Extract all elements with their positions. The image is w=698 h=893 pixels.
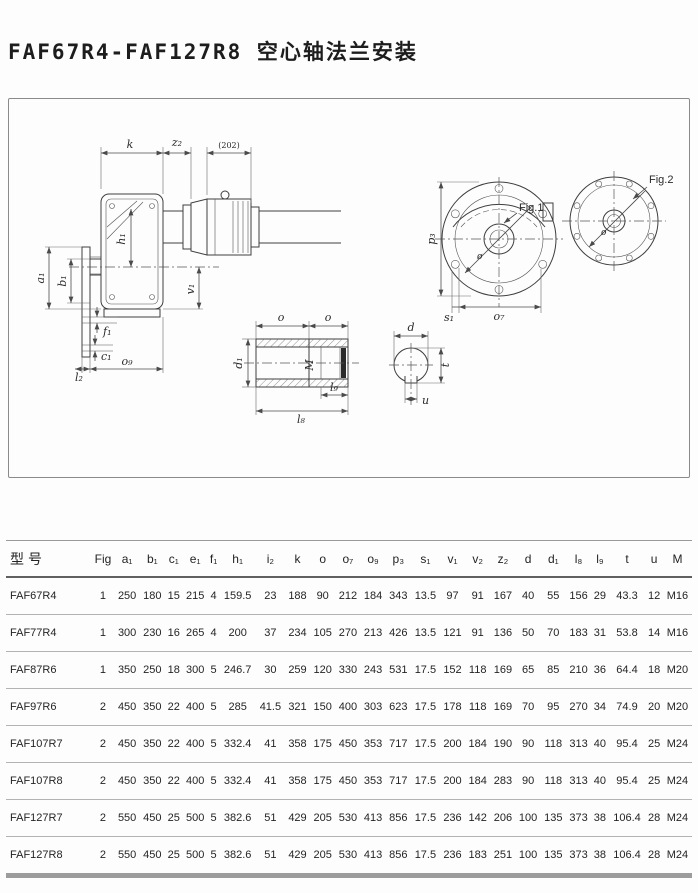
value-cell: 5 [208, 800, 220, 837]
value-cell: 106.4 [609, 800, 646, 837]
table-row: FAF67R41250180152154159.5231889021218434… [6, 577, 692, 615]
column-header: h₁ [219, 541, 256, 578]
value-cell: 413 [361, 800, 386, 837]
value-cell: 300 [115, 615, 140, 652]
column-header: z₂ [490, 541, 515, 578]
value-cell: 1 [91, 615, 114, 652]
column-header: l₈ [566, 541, 591, 578]
value-cell: M20 [663, 652, 692, 689]
value-cell: 500 [183, 837, 208, 876]
value-cell: 200 [219, 615, 256, 652]
value-cell: 90 [516, 726, 541, 763]
value-cell: 28 [645, 837, 663, 876]
value-cell: 121 [440, 615, 465, 652]
dim-label-o9: o₉ [121, 355, 133, 368]
value-cell: 215 [183, 577, 208, 615]
dim-label-l8: l₈ [297, 413, 306, 426]
value-cell: 183 [566, 615, 591, 652]
value-cell: 167 [490, 577, 515, 615]
column-header-model: 型号 [6, 541, 91, 578]
column-header: v₂ [465, 541, 490, 578]
table-row: FAF127R72550450255005382.651429205530413… [6, 800, 692, 837]
column-header: f₁ [208, 541, 220, 578]
value-cell: 178 [440, 689, 465, 726]
value-cell: 70 [541, 615, 566, 652]
value-cell: 17.5 [411, 652, 440, 689]
column-header: o₇ [335, 541, 360, 578]
value-cell: 15 [165, 577, 183, 615]
value-cell: 118 [465, 652, 490, 689]
value-cell: 118 [465, 689, 490, 726]
value-cell: 230 [140, 615, 165, 652]
value-cell: 50 [516, 615, 541, 652]
value-cell: 332.4 [219, 763, 256, 800]
value-cell: 5 [208, 726, 220, 763]
value-cell: 717 [386, 763, 411, 800]
value-cell: M24 [663, 837, 692, 876]
value-cell: 38 [591, 837, 609, 876]
value-cell: 450 [115, 763, 140, 800]
value-cell: 16 [165, 615, 183, 652]
value-cell: 350 [140, 726, 165, 763]
value-cell: 188 [285, 577, 310, 615]
value-cell: 1 [91, 652, 114, 689]
value-cell: 95 [541, 689, 566, 726]
value-cell: 270 [566, 689, 591, 726]
flange-view-fig2: ø Fig.2 [562, 171, 673, 271]
value-cell: 429 [285, 800, 310, 837]
column-header: u [645, 541, 663, 578]
dim-label-k: k [127, 138, 134, 151]
value-cell: 210 [566, 652, 591, 689]
value-cell: 283 [490, 763, 515, 800]
table-body: FAF67R41250180152154159.5231889021218434… [6, 577, 692, 876]
value-cell: 25 [645, 763, 663, 800]
dim-label-u: u [422, 394, 429, 407]
value-cell: 152 [440, 652, 465, 689]
value-cell: 530 [335, 837, 360, 876]
model-cell: FAF107R8 [6, 763, 91, 800]
value-cell: 40 [591, 726, 609, 763]
dim-label-l2: l₂ [75, 371, 83, 384]
fig1-label: Fig.1 [519, 202, 543, 214]
value-cell: 118 [541, 763, 566, 800]
model-cell: FAF127R7 [6, 800, 91, 837]
value-cell: 34 [591, 689, 609, 726]
value-cell: 450 [335, 763, 360, 800]
value-cell: 90 [310, 577, 335, 615]
value-cell: 36 [591, 652, 609, 689]
value-cell: 17.5 [411, 837, 440, 876]
value-cell: 550 [115, 837, 140, 876]
value-cell: 17.5 [411, 726, 440, 763]
value-cell: 358 [285, 726, 310, 763]
value-cell: 184 [465, 726, 490, 763]
model-cell: FAF107R7 [6, 726, 91, 763]
value-cell: 175 [310, 726, 335, 763]
value-cell: 175 [310, 763, 335, 800]
value-cell: 190 [490, 726, 515, 763]
value-cell: 22 [165, 763, 183, 800]
value-cell: 500 [183, 800, 208, 837]
dim-label-d: d [407, 321, 414, 334]
value-cell: 70 [516, 689, 541, 726]
hollow-shaft-drawing: M d₁ o o l₉ l₈ [232, 311, 359, 426]
value-cell: 450 [335, 726, 360, 763]
dim-label-a1: a₁ [34, 273, 47, 284]
value-cell: 169 [490, 689, 515, 726]
value-cell: 55 [541, 577, 566, 615]
value-cell: 37 [256, 615, 285, 652]
value-cell: 350 [140, 763, 165, 800]
value-cell: 1 [91, 577, 114, 615]
value-cell: 303 [361, 689, 386, 726]
column-header: a₁ [115, 541, 140, 578]
value-cell: 531 [386, 652, 411, 689]
value-cell: 65 [516, 652, 541, 689]
value-cell: 135 [541, 800, 566, 837]
value-cell: M24 [663, 763, 692, 800]
column-header: p₃ [386, 541, 411, 578]
value-cell: M16 [663, 577, 692, 615]
column-header: k [285, 541, 310, 578]
value-cell: 353 [361, 763, 386, 800]
value-cell: 213 [361, 615, 386, 652]
value-cell: 234 [285, 615, 310, 652]
column-header: t [609, 541, 646, 578]
dim-label-o-right: o [325, 311, 332, 324]
value-cell: 106.4 [609, 837, 646, 876]
dim-label-v1: v₁ [184, 284, 197, 295]
dim-label-d1: d₁ [232, 357, 245, 368]
value-cell: 300 [183, 652, 208, 689]
value-cell: 118 [541, 726, 566, 763]
value-cell: 285 [219, 689, 256, 726]
value-cell: 95.4 [609, 726, 646, 763]
value-cell: 321 [285, 689, 310, 726]
value-cell: 200 [440, 763, 465, 800]
column-header: s₁ [411, 541, 440, 578]
value-cell: 205 [310, 800, 335, 837]
value-cell: 270 [335, 615, 360, 652]
value-cell: 382.6 [219, 800, 256, 837]
value-cell: 41 [256, 763, 285, 800]
value-cell: 400 [335, 689, 360, 726]
value-cell: 14 [645, 615, 663, 652]
value-cell: 180 [140, 577, 165, 615]
value-cell: 251 [490, 837, 515, 876]
value-cell: 29 [591, 577, 609, 615]
value-cell: 4 [208, 615, 220, 652]
value-cell: 120 [310, 652, 335, 689]
value-cell: 382.6 [219, 837, 256, 876]
value-cell: 2 [91, 763, 114, 800]
value-cell: 358 [285, 763, 310, 800]
value-cell: 4 [208, 577, 220, 615]
value-cell: 43.3 [609, 577, 646, 615]
value-cell: 184 [465, 763, 490, 800]
value-cell: 184 [361, 577, 386, 615]
value-cell: 51 [256, 837, 285, 876]
value-cell: 259 [285, 652, 310, 689]
value-cell: 350 [140, 689, 165, 726]
value-cell: 243 [361, 652, 386, 689]
value-cell: 450 [140, 837, 165, 876]
diameter-mark-fig2: ø [600, 228, 607, 238]
value-cell: 91 [465, 615, 490, 652]
value-cell: 169 [490, 652, 515, 689]
value-cell: 100 [516, 800, 541, 837]
value-cell: 5 [208, 763, 220, 800]
value-cell: 400 [183, 763, 208, 800]
table-head: 型号Figa₁b₁c₁e₁f₁h₁i₂koo₇o₉p₃s₁v₁v₂z₂dd₁l₈… [6, 541, 692, 578]
diameter-mark-fig1: ø [476, 252, 483, 262]
value-cell: 41.5 [256, 689, 285, 726]
value-cell: 13.5 [411, 577, 440, 615]
thread-label-M: M [303, 359, 316, 372]
value-cell: 250 [115, 577, 140, 615]
dim-label-s1: s₁ [444, 311, 454, 324]
technical-drawing-panel: k z₂ (202) a₁ b₁ h₁ v₁ [8, 98, 690, 478]
model-cell: FAF77R4 [6, 615, 91, 652]
value-cell: 426 [386, 615, 411, 652]
dim-label-z2: z₂ [171, 136, 182, 149]
value-cell: 2 [91, 837, 114, 876]
value-cell: 22 [165, 726, 183, 763]
value-cell: 156 [566, 577, 591, 615]
value-cell: 13.5 [411, 615, 440, 652]
value-cell: 429 [285, 837, 310, 876]
model-cell: FAF97R6 [6, 689, 91, 726]
value-cell: 450 [115, 726, 140, 763]
model-cell: FAF127R8 [6, 837, 91, 876]
value-cell: M24 [663, 726, 692, 763]
value-cell: 400 [183, 689, 208, 726]
value-cell: 25 [645, 726, 663, 763]
value-cell: 450 [140, 800, 165, 837]
fig2-label: Fig.2 [649, 174, 673, 186]
table-row: FAF97R6245035022400528541.53211504003036… [6, 689, 692, 726]
value-cell: 100 [516, 837, 541, 876]
value-cell: 550 [115, 800, 140, 837]
value-cell: 18 [645, 652, 663, 689]
dim-label-h1: h₁ [115, 233, 128, 245]
value-cell: 183 [465, 837, 490, 876]
value-cell: 5 [208, 689, 220, 726]
value-cell: 450 [115, 689, 140, 726]
value-cell: M24 [663, 800, 692, 837]
column-header: e₁ [183, 541, 208, 578]
value-cell: 74.9 [609, 689, 646, 726]
column-header: Fig [91, 541, 114, 578]
value-cell: 22 [165, 689, 183, 726]
value-cell: 95.4 [609, 763, 646, 800]
value-cell: 28 [645, 800, 663, 837]
value-cell: 17.5 [411, 800, 440, 837]
value-cell: 30 [256, 652, 285, 689]
value-cell: 31 [591, 615, 609, 652]
dim-label-l9: l₉ [330, 381, 339, 394]
value-cell: 373 [566, 800, 591, 837]
dimension-table: 型号Figa₁b₁c₁e₁f₁h₁i₂koo₇o₉p₃s₁v₁v₂z₂dd₁l₈… [6, 540, 692, 878]
dim-label-c1: c₁ [101, 350, 112, 363]
value-cell: 350 [115, 652, 140, 689]
value-cell: 41 [256, 726, 285, 763]
value-cell: 159.5 [219, 577, 256, 615]
value-cell: 200 [440, 726, 465, 763]
model-cell: FAF87R6 [6, 652, 91, 689]
table-row: FAF127R82550450255005382.651429205530413… [6, 837, 692, 876]
column-header: v₁ [440, 541, 465, 578]
value-cell: 856 [386, 837, 411, 876]
technical-drawing: k z₂ (202) a₁ b₁ h₁ v₁ [9, 99, 689, 477]
value-cell: 64.4 [609, 652, 646, 689]
value-cell: 343 [386, 577, 411, 615]
table-row: FAF107R82450350224005332.441358175450353… [6, 763, 692, 800]
value-cell: 18 [165, 652, 183, 689]
column-header: i₂ [256, 541, 285, 578]
catalog-page: FAF67R4-FAF127R8 空心轴法兰安装 [0, 0, 698, 893]
value-cell: 2 [91, 800, 114, 837]
value-cell: 142 [465, 800, 490, 837]
value-cell: 265 [183, 615, 208, 652]
value-cell: 205 [310, 837, 335, 876]
value-cell: 40 [591, 763, 609, 800]
value-cell: 2 [91, 689, 114, 726]
table-row: FAF87R61350250183005246.7302591203302435… [6, 652, 692, 689]
column-header: d₁ [541, 541, 566, 578]
value-cell: 373 [566, 837, 591, 876]
value-cell: 5 [208, 837, 220, 876]
value-cell: 91 [465, 577, 490, 615]
dim-label-o7: o₇ [493, 310, 505, 323]
table-row: FAF77R4130023016265420037234105270213426… [6, 615, 692, 652]
value-cell: 150 [310, 689, 335, 726]
value-cell: 413 [361, 837, 386, 876]
dim-label-o-left: o [278, 311, 285, 324]
dim-label-f1: f₁ [102, 325, 111, 338]
value-cell: M16 [663, 615, 692, 652]
column-header: o [310, 541, 335, 578]
value-cell: 38 [591, 800, 609, 837]
value-cell: 5 [208, 652, 220, 689]
value-cell: 12 [645, 577, 663, 615]
value-cell: 40 [516, 577, 541, 615]
column-header: M [663, 541, 692, 578]
value-cell: 105 [310, 615, 335, 652]
column-header: o₉ [361, 541, 386, 578]
value-cell: 17.5 [411, 763, 440, 800]
value-cell: 97 [440, 577, 465, 615]
front-view-fig1: ø Fig.1 p₃ s₁ o₇ [425, 177, 563, 324]
value-cell: 53.8 [609, 615, 646, 652]
value-cell: 353 [361, 726, 386, 763]
value-cell: 250 [140, 652, 165, 689]
value-cell: 212 [335, 577, 360, 615]
value-cell: 51 [256, 800, 285, 837]
value-cell: 236 [440, 800, 465, 837]
column-header: c₁ [165, 541, 183, 578]
dim-label-p3: p₃ [425, 233, 438, 244]
value-cell: 330 [335, 652, 360, 689]
value-cell: 136 [490, 615, 515, 652]
value-cell: 856 [386, 800, 411, 837]
dim-label-202: (202) [218, 141, 240, 150]
value-cell: 623 [386, 689, 411, 726]
column-header: d [516, 541, 541, 578]
value-cell: 25 [165, 837, 183, 876]
value-cell: 313 [566, 726, 591, 763]
value-cell: 717 [386, 726, 411, 763]
dim-label-t: t [439, 362, 452, 367]
value-cell: 25 [165, 800, 183, 837]
value-cell: 17.5 [411, 689, 440, 726]
value-cell: 313 [566, 763, 591, 800]
dim-label-b1: b₁ [56, 275, 69, 286]
column-header: b₁ [140, 541, 165, 578]
value-cell: M20 [663, 689, 692, 726]
value-cell: 85 [541, 652, 566, 689]
value-cell: 135 [541, 837, 566, 876]
value-cell: 2 [91, 726, 114, 763]
table-row: FAF107R72450350224005332.441358175450353… [6, 726, 692, 763]
value-cell: 332.4 [219, 726, 256, 763]
value-cell: 90 [516, 763, 541, 800]
table-header-row: 型号Figa₁b₁c₁e₁f₁h₁i₂koo₇o₉p₃s₁v₁v₂z₂dd₁l₈… [6, 541, 692, 578]
value-cell: 400 [183, 726, 208, 763]
value-cell: 206 [490, 800, 515, 837]
value-cell: 20 [645, 689, 663, 726]
page-title: FAF67R4-FAF127R8 空心轴法兰安装 [8, 36, 418, 66]
value-cell: 246.7 [219, 652, 256, 689]
column-header: l₉ [591, 541, 609, 578]
model-cell: FAF67R4 [6, 577, 91, 615]
value-cell: 530 [335, 800, 360, 837]
value-cell: 23 [256, 577, 285, 615]
value-cell: 236 [440, 837, 465, 876]
shaft-section-drawing: d t u [389, 321, 452, 407]
